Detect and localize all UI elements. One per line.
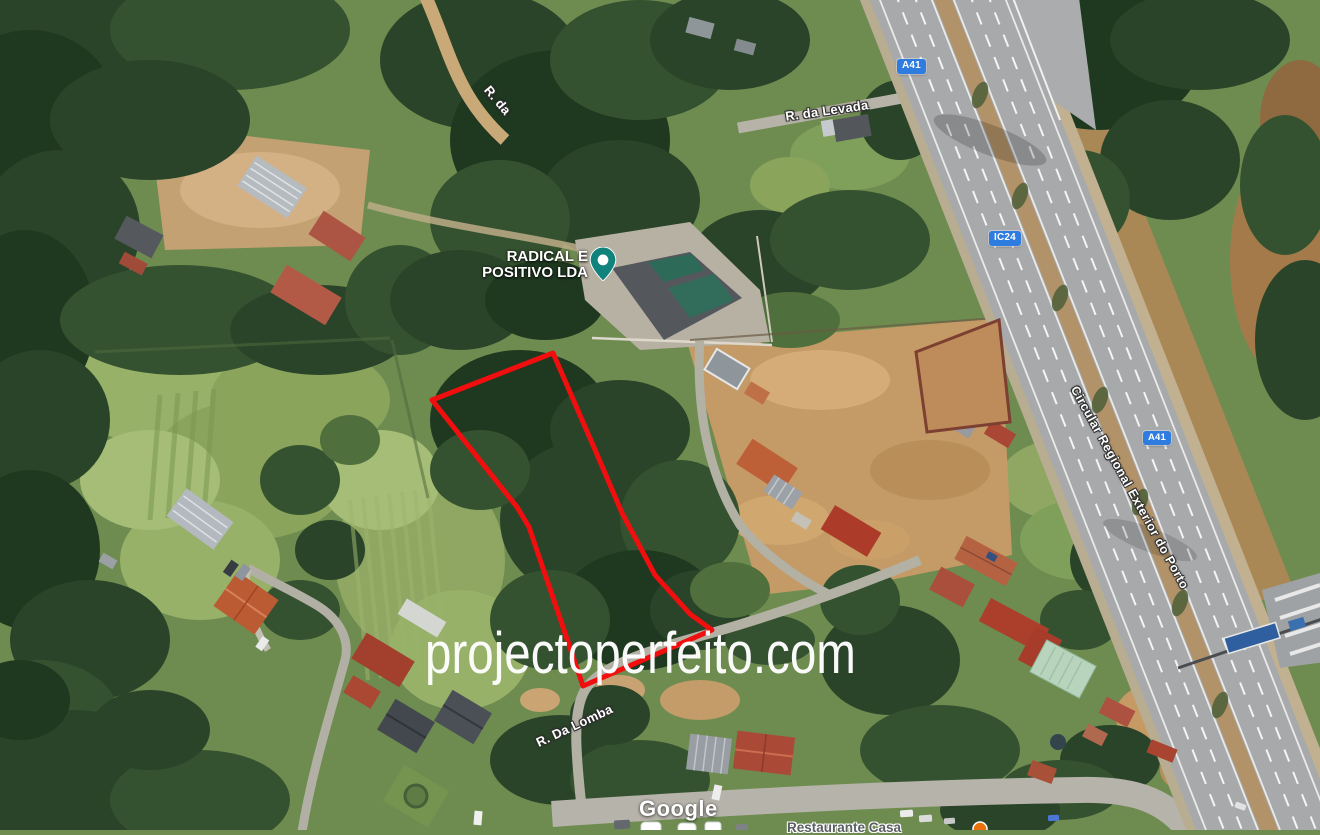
watermark: projectoperfeito.com (425, 620, 856, 687)
business-label-line1: RADICAL E (470, 249, 588, 265)
satellite-map-canvas[interactable] (0, 0, 1320, 830)
building-icon[interactable] (678, 823, 696, 830)
business-label[interactable]: RADICAL E POSITIVO LDA (470, 249, 588, 281)
place-pin-icon[interactable] (589, 247, 617, 281)
business-label-line2: POSITIVO LDA (470, 265, 588, 281)
building-icon[interactable] (641, 822, 661, 830)
poi-icon[interactable] (736, 824, 748, 830)
car-icon[interactable] (614, 820, 630, 830)
poi-label-restaurante[interactable]: Restaurante Casa (787, 820, 901, 835)
route-badge-a41: A41 (897, 59, 926, 74)
building-icon[interactable] (705, 822, 721, 830)
route-badge-a41-mid: A41 (1143, 431, 1171, 445)
restaurant-pin-icon[interactable] (973, 822, 987, 830)
route-badge-ic24: IC24 (989, 231, 1021, 246)
aerial-screenshot: { "map": { "watermark_text": "projectope… (0, 0, 1320, 830)
google-logo[interactable]: Google (639, 796, 718, 822)
